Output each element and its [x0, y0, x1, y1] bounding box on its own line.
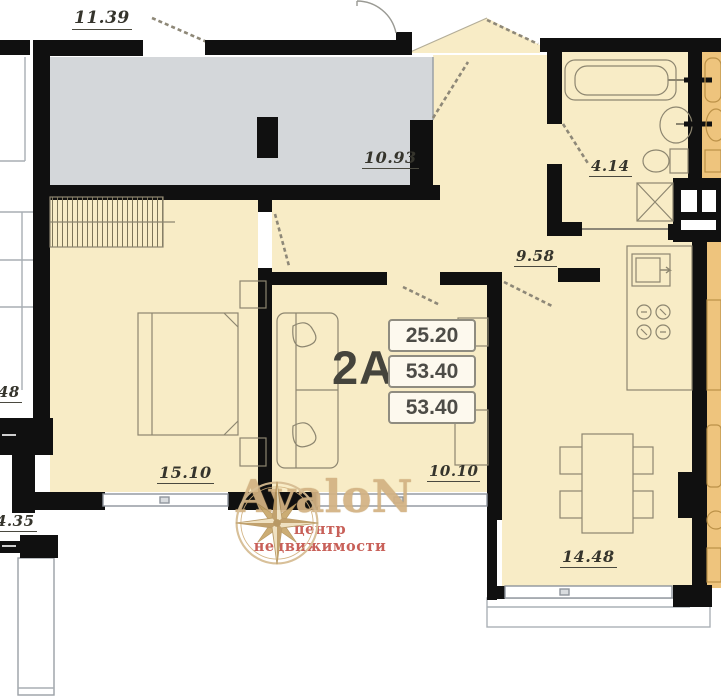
kitchen-floor	[502, 240, 692, 590]
unit-label: 2A	[332, 340, 394, 395]
compass-rose-icon	[234, 480, 320, 566]
dim-left-upper: 48	[0, 385, 22, 403]
dim-bathroom: 4.14	[589, 159, 632, 177]
dim-left-lower: 4.35	[0, 514, 37, 532]
entry-door-swing-arc	[357, 1, 396, 33]
watermark: AvaloN центр недвижимости	[234, 474, 514, 555]
area-info-box: 25.20 53.40 53.40	[388, 319, 476, 424]
area-living-value: 25.20	[388, 319, 476, 352]
dim-kitchen: 14.48	[560, 549, 617, 568]
dim-bedroom: 15.10	[157, 465, 214, 484]
dim-loggia: 10.93	[362, 150, 419, 169]
dim-top-balcony: 11.39	[72, 10, 132, 30]
area-total-value: 53.40	[388, 355, 476, 388]
dining-table-icon	[582, 434, 633, 533]
dim-hallway: 9.58	[514, 249, 557, 267]
dining-window	[505, 586, 672, 598]
area-total2-value: 53.40	[388, 391, 476, 424]
floor-plan: 11.39 10.93 4.14 9.58 15.10 10.10 14.48 …	[0, 0, 721, 700]
